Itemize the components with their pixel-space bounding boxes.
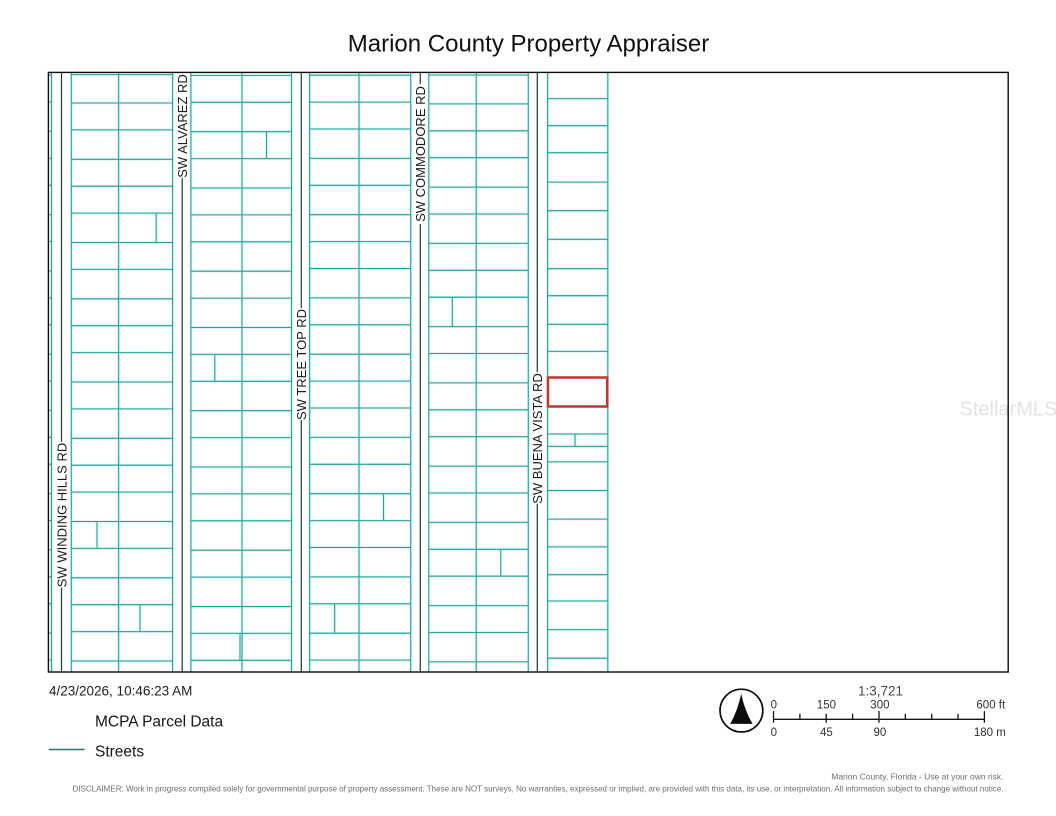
svg-text:Marion County Property Apprais: Marion County Property Appraiser <box>348 31 710 58</box>
svg-text:45: 45 <box>820 727 833 739</box>
svg-text:Streets: Streets <box>95 744 144 761</box>
svg-text:4/23/2026, 10:46:23 AM: 4/23/2026, 10:46:23 AM <box>49 684 192 699</box>
svg-text:600 ft: 600 ft <box>976 699 1006 711</box>
svg-text:150: 150 <box>817 699 836 711</box>
svg-text:0: 0 <box>771 727 777 739</box>
svg-text:180 m: 180 m <box>974 727 1006 739</box>
svg-text:300: 300 <box>870 699 889 711</box>
svg-text:1:3,721: 1:3,721 <box>858 684 903 699</box>
svg-text:Marion County, Florida - Use a: Marion County, Florida - Use at your own… <box>831 772 1003 782</box>
svg-text:SW BUENA VISTA RD: SW BUENA VISTA RD <box>530 373 545 504</box>
svg-text:MCPA Parcel Data: MCPA Parcel Data <box>95 714 223 731</box>
svg-text:SW ALVAREZ RD: SW ALVAREZ RD <box>175 74 190 178</box>
svg-text:90: 90 <box>874 727 887 739</box>
svg-text:SW WINDING HILLS RD: SW WINDING HILLS RD <box>54 443 69 587</box>
svg-text:SW COMMODORE RD: SW COMMODORE RD <box>413 86 428 222</box>
svg-text:DISCLAIMER: Work in progress c: DISCLAIMER: Work in progress compiled so… <box>73 784 1004 794</box>
svg-text:0: 0 <box>771 699 777 711</box>
svg-text:SW TREE TOP RD: SW TREE TOP RD <box>294 309 309 420</box>
